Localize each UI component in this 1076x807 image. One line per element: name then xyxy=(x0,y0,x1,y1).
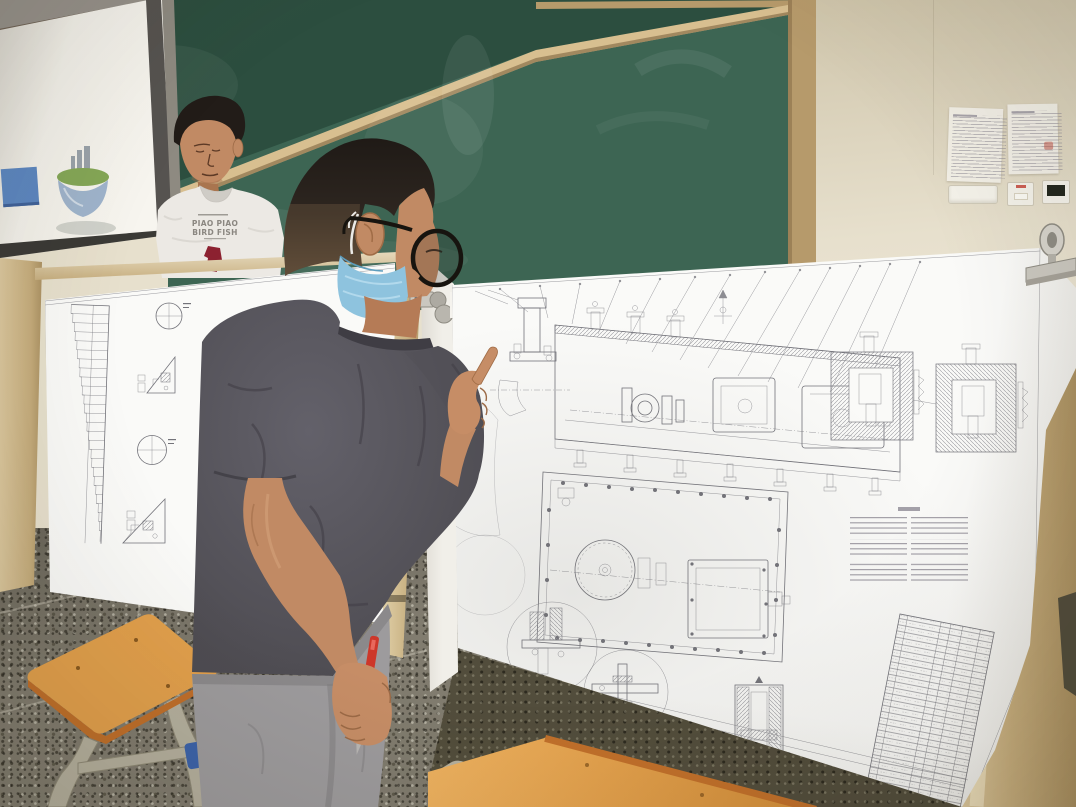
control-box-slot xyxy=(1014,193,1028,200)
frame-edge-shadow xyxy=(788,0,792,268)
board-clip xyxy=(1024,216,1076,290)
slide-blue-window xyxy=(1,167,40,207)
section-detail-bottom xyxy=(123,499,165,543)
seat-screw xyxy=(134,638,138,642)
stool-crossbar xyxy=(78,745,198,774)
control-box-red-label xyxy=(1016,185,1026,188)
pitch-circle-bottom xyxy=(137,435,176,465)
desk-screw xyxy=(700,793,704,797)
thermostat-screen xyxy=(1047,185,1065,196)
notice-text-lines xyxy=(951,114,1007,180)
wall-corner-shadow xyxy=(933,0,934,175)
classroom-photo: PIAO PIAO BIRD FISH xyxy=(0,0,1076,807)
slide-island-render xyxy=(50,140,120,245)
wall-control-box xyxy=(1007,182,1034,206)
light-switch-panel xyxy=(948,185,998,204)
red-stamp xyxy=(1044,142,1053,150)
wall-notice-left xyxy=(947,107,1004,183)
examiner-student xyxy=(188,124,522,807)
pointing-index-finger xyxy=(472,347,498,384)
tolerance-table xyxy=(63,305,109,544)
pitch-circle-top xyxy=(156,303,191,329)
chalkboard-right-frame xyxy=(788,0,816,268)
desk-screw xyxy=(585,763,589,767)
seat-screw xyxy=(166,684,170,688)
notice-text-lines xyxy=(1012,110,1063,171)
glasses-lens xyxy=(413,231,461,285)
section-detail-top xyxy=(138,357,175,393)
thermostat xyxy=(1042,180,1070,204)
wall-notice-right xyxy=(1007,104,1058,175)
clip-knob-center xyxy=(1047,232,1057,248)
seat-screw xyxy=(76,666,80,670)
